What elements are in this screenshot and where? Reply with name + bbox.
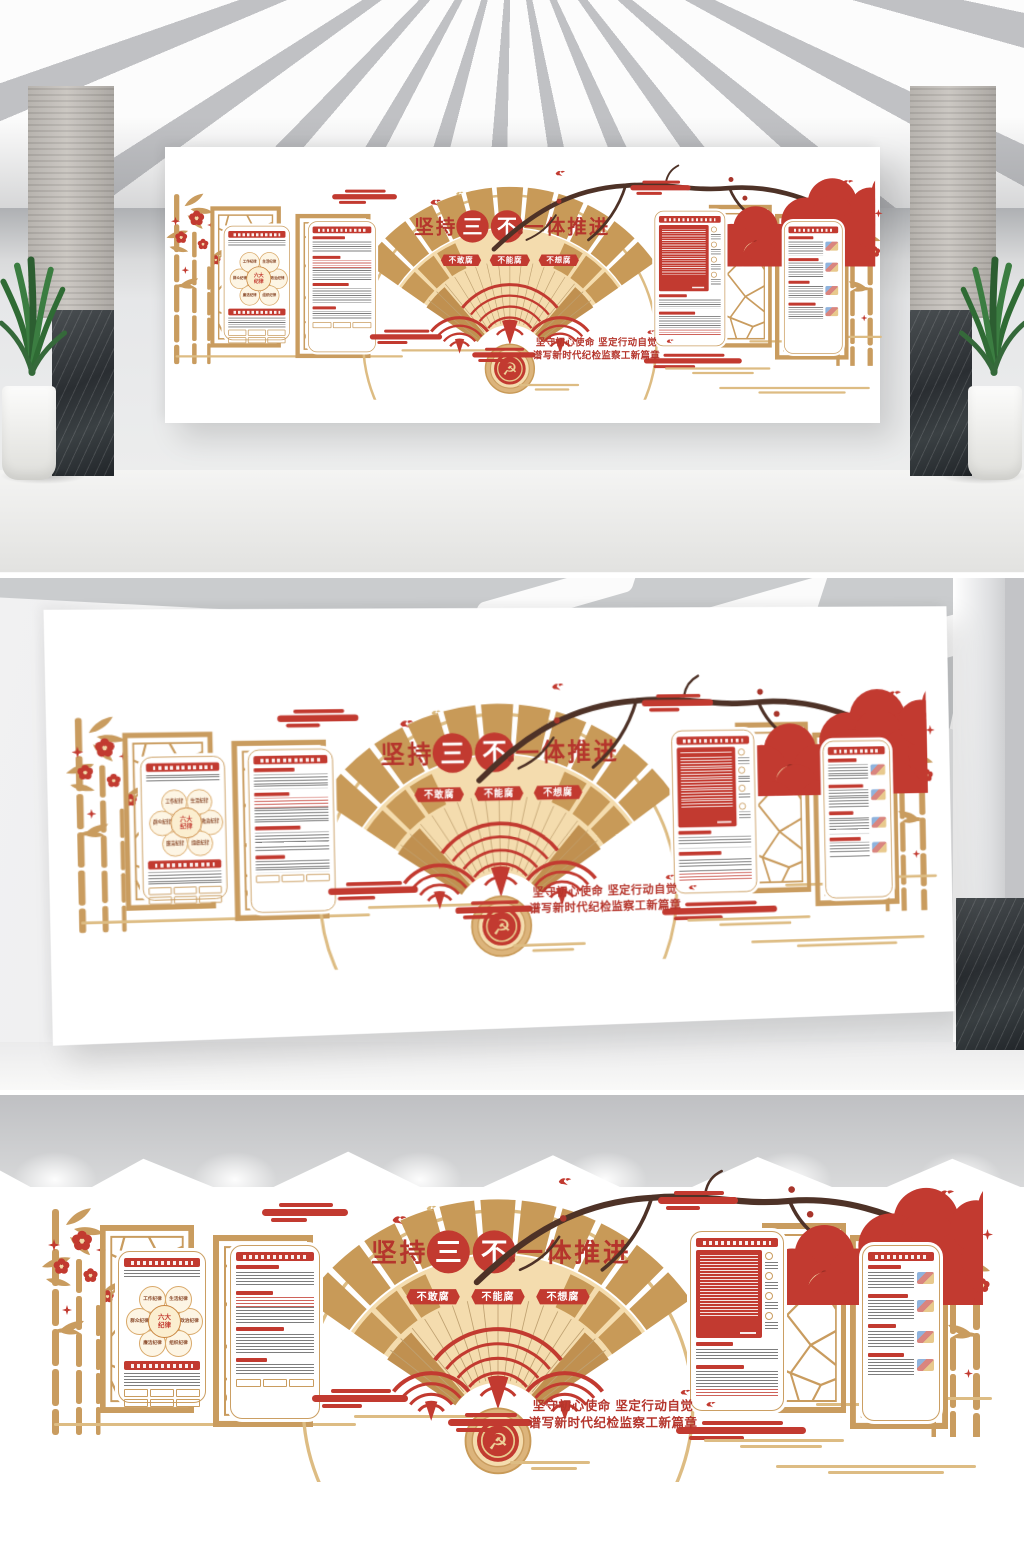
mini-heading bbox=[828, 784, 862, 788]
mini-heading bbox=[696, 1365, 744, 1369]
bird-icon bbox=[558, 1177, 572, 1186]
microtext-block bbox=[124, 1270, 200, 1279]
panel-header-bar bbox=[236, 1252, 314, 1261]
mini-heading bbox=[236, 1291, 273, 1295]
gold-cloud-icon bbox=[751, 935, 924, 948]
gold-label-row bbox=[228, 337, 285, 343]
cloud-icon bbox=[630, 181, 690, 195]
gold-bullet-list bbox=[711, 225, 721, 291]
content-scroll-4 bbox=[822, 740, 892, 899]
panel-header-bar bbox=[228, 231, 285, 238]
illustration-thumb bbox=[825, 307, 838, 316]
gold-bullet-list bbox=[765, 1250, 778, 1338]
gold-cloud-icon bbox=[776, 1465, 976, 1474]
cloud-icon bbox=[262, 1203, 348, 1222]
design-board: 政治纪律 组织纪律 廉洁纪律 群众纪律 工作纪律 生活纪律 六大纪律 bbox=[44, 606, 955, 1046]
mini-heading bbox=[868, 1265, 901, 1269]
star-icon bbox=[48, 1239, 60, 1251]
floor bbox=[0, 470, 1024, 573]
panel-header-bar bbox=[124, 1258, 200, 1267]
mini-heading bbox=[679, 851, 721, 856]
svg-text:☭: ☭ bbox=[492, 915, 511, 940]
microtext-block bbox=[659, 299, 721, 308]
panel-header-bar bbox=[868, 1252, 934, 1261]
plum-flower-icon bbox=[76, 763, 95, 781]
content-scroll-2 bbox=[230, 1245, 320, 1419]
cloud-icon bbox=[312, 1389, 408, 1408]
product-preview-page: 政治纪律 组织纪律 廉洁纪律 群众纪律 工作纪律 生活纪律 六大纪律 bbox=[0, 0, 1024, 1542]
gold-label-row bbox=[149, 885, 222, 894]
culture-wall-design: 政治纪律 组织纪律 廉洁纪律 群众纪律 工作纪律 生活纪律 六大纪律 bbox=[40, 1165, 990, 1500]
design-instance: 政治纪律 组织纪律 廉洁纪律 群众纪律 工作纪律 生活纪律 六大纪律 bbox=[40, 1165, 990, 1500]
cloud-icon bbox=[642, 694, 713, 712]
mini-heading bbox=[255, 826, 301, 831]
mini-heading bbox=[236, 1358, 267, 1362]
gold-label-row bbox=[236, 1379, 314, 1387]
floor bbox=[0, 1042, 1024, 1090]
panel-header-bar bbox=[676, 736, 749, 745]
microtext-block bbox=[659, 316, 721, 328]
gold-label-row bbox=[256, 873, 330, 882]
microtext-block bbox=[254, 773, 328, 788]
microtext-block bbox=[255, 831, 329, 851]
microtext-block bbox=[313, 260, 372, 268]
microtext-block bbox=[236, 1334, 314, 1354]
star-icon bbox=[964, 1369, 973, 1378]
svg-text:不敢腐: 不敢腐 bbox=[449, 255, 474, 265]
gold-cloud-icon bbox=[519, 384, 579, 391]
bird-icon bbox=[430, 199, 441, 207]
illustration-thumb bbox=[917, 1359, 934, 1371]
panel-header-bar bbox=[228, 309, 285, 316]
mini-heading bbox=[788, 236, 813, 239]
panel-header-bar bbox=[253, 755, 327, 765]
cloud-icon bbox=[277, 709, 358, 728]
illustration-thumb bbox=[871, 789, 886, 800]
red-letter-box bbox=[696, 1250, 762, 1338]
slogan-banner: 坚守初心使命 坚定行动自觉 谱写新时代纪检监察工新篇章 bbox=[518, 1397, 708, 1431]
microtext-block bbox=[868, 1331, 914, 1349]
mini-heading bbox=[868, 1353, 904, 1357]
red-letter-box bbox=[677, 747, 737, 828]
scene-room-perspective: 政治纪律 组织纪律 廉洁纪律 群众纪律 工作纪律 生活纪律 六大纪律 bbox=[0, 578, 1024, 1090]
microtext-block bbox=[788, 241, 823, 255]
mini-heading bbox=[256, 855, 286, 859]
mini-heading bbox=[678, 830, 711, 834]
star-icon bbox=[874, 209, 882, 217]
scene-room-front: 政治纪律 组织纪律 廉洁纪律 群众纪律 工作纪律 生活纪律 六大纪律 bbox=[0, 0, 1024, 573]
mini-heading bbox=[830, 836, 861, 840]
design-instance: 政治纪律 组织纪律 廉洁纪律 群众纪律 工作纪律 生活纪律 六大纪律 bbox=[62, 668, 937, 995]
plum-flower-icon bbox=[188, 209, 206, 227]
mini-heading bbox=[313, 236, 345, 239]
illustration-thumb bbox=[917, 1300, 934, 1312]
content-scroll-3 bbox=[671, 729, 757, 894]
banner-slogan-line1: 坚守初心使命 坚定行动自觉 bbox=[525, 336, 668, 349]
cloud-icon bbox=[658, 1191, 738, 1210]
microtext-block bbox=[829, 789, 869, 808]
microtext-block bbox=[696, 1371, 778, 1387]
content-scroll-1: 政治纪律 组织纪律 廉洁纪律 群众纪律 工作纪律 生活纪律 六大纪律 bbox=[224, 226, 290, 340]
content-scroll-3 bbox=[690, 1231, 784, 1411]
gold-label-row bbox=[124, 1389, 200, 1397]
bird-icon bbox=[665, 874, 675, 881]
mini-heading bbox=[659, 294, 687, 297]
star-icon bbox=[171, 217, 180, 226]
content-scroll-1: 政治纪律 组织纪律 廉洁纪律 群众纪律 工作纪律 生活纪律 六大纪律 bbox=[140, 756, 228, 901]
gold-cloud-icon bbox=[510, 1461, 590, 1470]
illustration-thumb bbox=[872, 842, 887, 853]
illustration-thumb bbox=[917, 1272, 934, 1284]
diagram-center: 六大纪律 bbox=[148, 1305, 181, 1338]
microtext-block bbox=[236, 1364, 314, 1376]
marble-base-right bbox=[956, 898, 1024, 1050]
culture-wall-design: 政治纪律 组织纪律 廉洁纪律 群众纪律 工作纪律 生活纪律 六大纪律 bbox=[62, 668, 937, 995]
microtext-block bbox=[124, 1373, 200, 1386]
plum-flower-icon bbox=[197, 238, 210, 251]
plum-flower-icon bbox=[105, 772, 122, 788]
panel-header-bar bbox=[659, 216, 721, 223]
illustration-thumb bbox=[825, 241, 838, 250]
bird-icon bbox=[400, 719, 414, 728]
panel-header-bar bbox=[828, 746, 885, 755]
plum-flower-icon bbox=[174, 230, 188, 244]
plum-flower-icon bbox=[82, 1267, 99, 1284]
microtext-block bbox=[868, 1272, 914, 1290]
bird-icon bbox=[938, 1189, 955, 1200]
microtext-block bbox=[313, 268, 372, 280]
mini-heading bbox=[313, 306, 336, 309]
cloud-icon bbox=[328, 881, 418, 901]
plum-flower-icon bbox=[52, 1257, 71, 1276]
panel-header-bar bbox=[146, 762, 219, 772]
design-board: 政治纪律 组织纪律 廉洁纪律 群众纪律 工作纪律 生活纪律 六大纪律 bbox=[165, 147, 880, 423]
bird-icon bbox=[551, 683, 564, 691]
svg-text:☭: ☭ bbox=[502, 360, 517, 380]
bird-icon bbox=[555, 170, 566, 177]
svg-text:坚持: 坚持 bbox=[380, 739, 434, 769]
svg-text:不敢腐: 不敢腐 bbox=[417, 1290, 450, 1303]
illustration-thumb bbox=[871, 816, 886, 827]
mini-heading bbox=[696, 1342, 733, 1346]
bird-icon bbox=[431, 710, 441, 717]
illustration-thumb bbox=[917, 1331, 934, 1343]
svg-text:不敢腐: 不敢腐 bbox=[424, 789, 455, 801]
svg-text:坚持: 坚持 bbox=[414, 216, 457, 239]
red-letter-box bbox=[659, 225, 709, 291]
microtext-block bbox=[788, 307, 823, 319]
microtext-block bbox=[254, 806, 328, 822]
scene-flat-design: 政治纪律 组织纪律 廉洁纪律 群众纪律 工作纪律 生活纪律 六大纪律 bbox=[0, 1095, 1024, 1542]
plum-flower-icon bbox=[70, 1229, 94, 1253]
microtext-block bbox=[830, 842, 870, 857]
illustration-thumb bbox=[870, 764, 885, 775]
bird-icon bbox=[426, 1205, 437, 1212]
mini-heading bbox=[254, 792, 290, 796]
microtext-block bbox=[228, 318, 285, 328]
content-scroll-3 bbox=[654, 211, 725, 347]
content-scroll-4 bbox=[784, 221, 843, 354]
microtext-block bbox=[679, 835, 752, 848]
mini-heading bbox=[254, 768, 295, 772]
panel-header-bar bbox=[124, 1361, 200, 1370]
svg-text:坚持: 坚持 bbox=[371, 1238, 428, 1268]
mini-heading bbox=[659, 311, 695, 314]
gold-label-row bbox=[313, 322, 372, 328]
panel-header-bar bbox=[313, 227, 372, 234]
microtext-block bbox=[146, 774, 219, 784]
banner-slogan-line2: 谱写新时代纪检监察工新篇章 bbox=[518, 1414, 708, 1431]
content-scroll-2 bbox=[248, 748, 337, 913]
bird-icon bbox=[456, 191, 464, 196]
content-scroll-4 bbox=[862, 1245, 940, 1421]
microtext-block bbox=[659, 330, 721, 336]
plant-pot-left bbox=[2, 386, 56, 480]
microtext-block bbox=[788, 286, 823, 300]
microtext-block bbox=[313, 311, 372, 320]
mini-heading bbox=[828, 758, 857, 762]
six-disciplines-diagram: 政治纪律 组织纪律 廉洁纪律 群众纪律 工作纪律 生活纪律 六大纪律 bbox=[146, 785, 221, 858]
bird-icon bbox=[680, 1389, 691, 1396]
microtext-block bbox=[868, 1359, 914, 1375]
bird-icon bbox=[647, 330, 655, 335]
star-icon bbox=[62, 1305, 72, 1315]
illustration-thumb bbox=[825, 263, 838, 272]
plant-pot-right bbox=[968, 386, 1022, 480]
microtext-block bbox=[236, 1272, 314, 1287]
microtext-block bbox=[828, 764, 868, 781]
illustration-thumb bbox=[825, 286, 838, 295]
star-icon bbox=[861, 315, 868, 322]
panel-header-bar bbox=[788, 227, 838, 234]
cloud-icon bbox=[332, 190, 397, 204]
content-scroll-2 bbox=[308, 221, 376, 352]
gold-cloud-icon bbox=[665, 367, 770, 374]
cloud-icon bbox=[370, 330, 442, 344]
microtext-block bbox=[679, 872, 752, 881]
gold-bullet-list bbox=[738, 747, 751, 827]
star-icon bbox=[182, 266, 190, 274]
microtext-block bbox=[679, 856, 752, 872]
mini-heading bbox=[788, 302, 815, 305]
microtext-block bbox=[236, 1297, 314, 1307]
gold-label-row bbox=[124, 1399, 200, 1407]
mini-heading bbox=[868, 1324, 896, 1328]
slogan-banner: 坚守初心使命 坚定行动自觉 谱写新时代纪检监察工新篇章 bbox=[519, 881, 691, 917]
gold-label-row bbox=[228, 329, 285, 335]
bird-icon bbox=[841, 179, 854, 187]
microtext-block bbox=[788, 263, 823, 278]
microtext-block bbox=[868, 1300, 914, 1320]
gold-cloud-icon bbox=[704, 1439, 844, 1448]
banner-slogan-line1: 坚守初心使命 坚定行动自觉 bbox=[518, 1397, 708, 1414]
mini-heading bbox=[788, 258, 818, 261]
mini-heading bbox=[788, 281, 809, 284]
microtext-block bbox=[228, 240, 285, 247]
star-icon bbox=[912, 850, 920, 858]
six-disciplines-diagram: 政治纪律 组织纪律 廉洁纪律 群众纪律 工作纪律 生活纪律 六大纪律 bbox=[228, 249, 285, 306]
mini-heading bbox=[829, 811, 853, 815]
bird-icon bbox=[887, 690, 902, 700]
mini-heading bbox=[868, 1294, 908, 1298]
panel-header-bar bbox=[696, 1238, 778, 1247]
six-disciplines-diagram: 政治纪律 组织纪律 廉洁纪律 群众纪律 工作纪律 生活纪律 六大纪律 bbox=[124, 1282, 200, 1358]
content-scroll-1: 政治纪律 组织纪律 廉洁纪律 群众纪律 工作纪律 生活纪律 六大纪律 bbox=[118, 1251, 206, 1403]
slogan-banner: 坚守初心使命 坚定行动自觉 谱写新时代纪检监察工新篇章 bbox=[525, 336, 668, 362]
svg-text:☭: ☭ bbox=[488, 1429, 509, 1455]
microtext-block bbox=[256, 860, 330, 873]
star-icon bbox=[71, 746, 83, 758]
gold-cloud-icon bbox=[719, 387, 870, 394]
mini-heading bbox=[236, 1327, 284, 1331]
star-icon bbox=[925, 725, 935, 735]
panel-header-bar bbox=[148, 859, 221, 869]
microtext-block bbox=[696, 1349, 778, 1361]
plum-flower-icon bbox=[93, 736, 117, 759]
design-instance: 政治纪律 组织纪律 廉洁纪律 群众纪律 工作纪律 生活纪律 六大纪律 bbox=[165, 161, 880, 413]
microtext-block bbox=[148, 871, 221, 885]
mini-heading bbox=[313, 256, 341, 259]
microtext-block bbox=[313, 288, 372, 303]
mini-heading bbox=[236, 1265, 279, 1269]
microtext-block bbox=[236, 1307, 314, 1323]
diagram-center: 六大纪律 bbox=[246, 266, 271, 291]
mini-heading bbox=[313, 283, 349, 286]
star-icon bbox=[87, 809, 97, 819]
bird-icon bbox=[392, 1215, 407, 1225]
star-icon bbox=[982, 1229, 993, 1240]
microtext-block bbox=[696, 1389, 778, 1397]
microtext-block bbox=[829, 817, 869, 834]
microtext-block bbox=[313, 241, 372, 252]
culture-wall-design: 政治纪律 组织纪律 廉洁纪律 群众纪律 工作纪律 生活纪律 六大纪律 bbox=[165, 161, 880, 413]
banner-slogan-line2: 谱写新时代纪检监察工新篇章 bbox=[525, 348, 668, 361]
